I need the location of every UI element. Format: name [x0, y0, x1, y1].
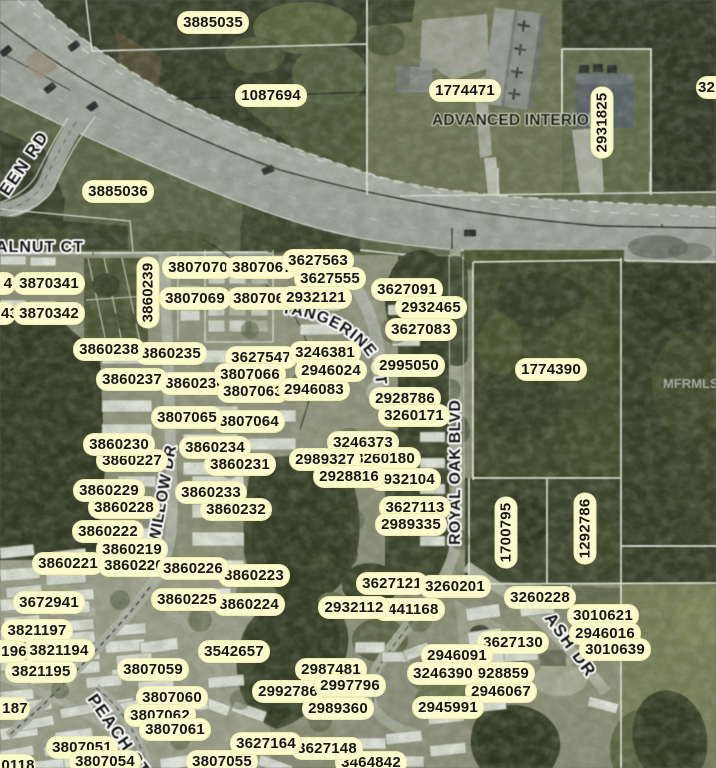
svg-text:ADVANCED INTERIOR: ADVANCED INTERIOR	[432, 112, 600, 129]
svg-text:ALNUT CT: ALNUT CT	[0, 239, 84, 256]
svg-text:MFRMLS: MFRMLS	[663, 376, 716, 391]
svg-text:ROYAL OAK BLVD: ROYAL OAK BLVD	[447, 400, 464, 545]
